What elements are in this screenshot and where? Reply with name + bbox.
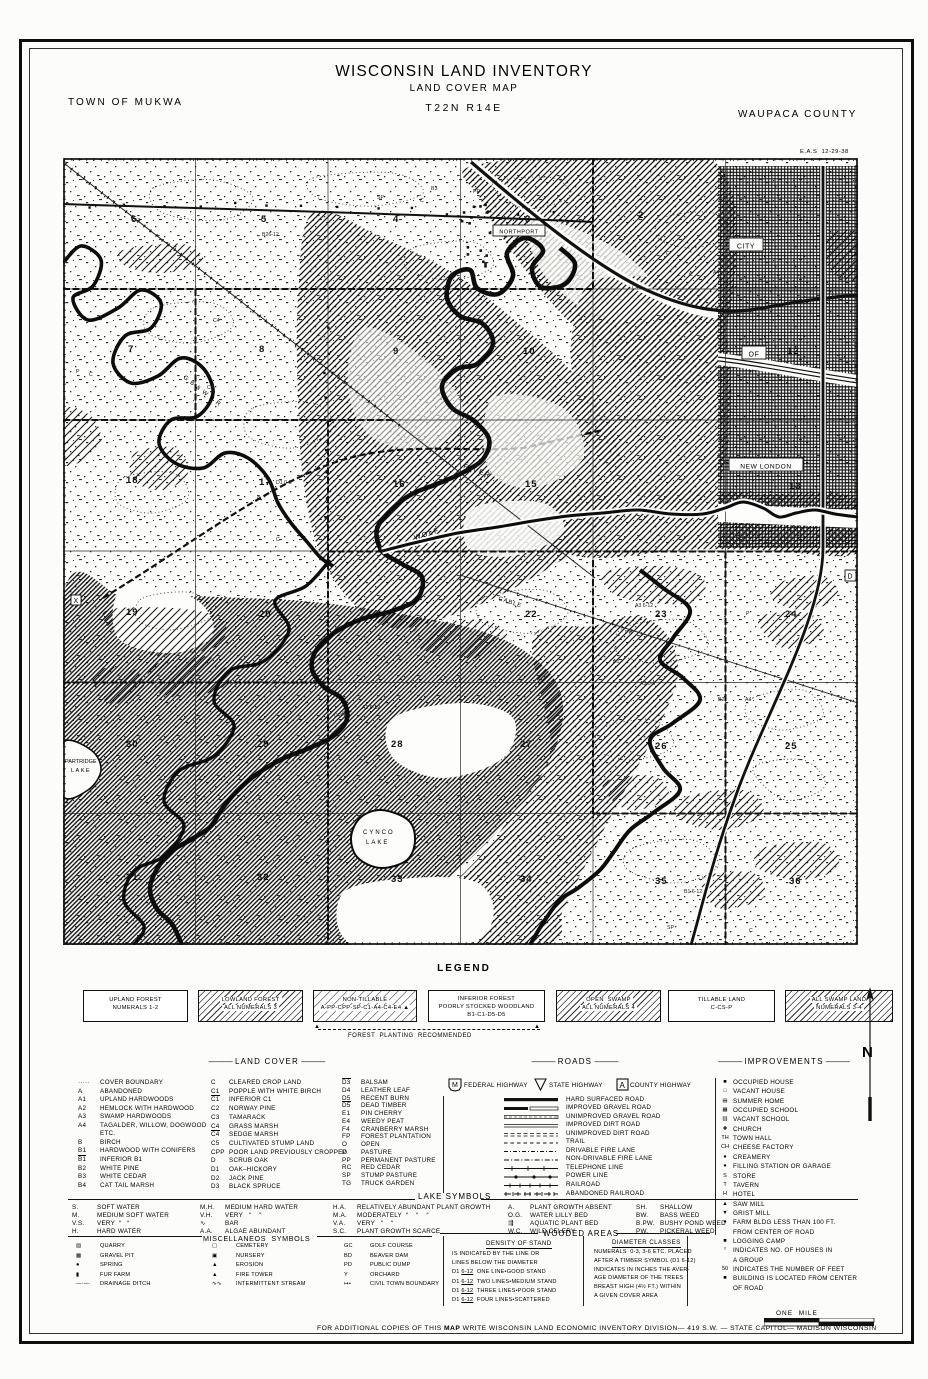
svg-text:27: 27: [520, 739, 533, 750]
svg-text:36: 36: [789, 876, 802, 887]
svg-text:C4: C4: [213, 318, 220, 324]
svg-text:PP: PP: [473, 189, 480, 195]
svg-text:9: 9: [393, 346, 399, 357]
svg-text:3: 3: [525, 214, 531, 225]
svg-text:7: 7: [128, 344, 134, 355]
svg-text:A3 6-12: A3 6-12: [635, 603, 653, 609]
svg-text:17: 17: [259, 477, 272, 488]
svg-text:2: 2: [638, 210, 644, 221]
svg-text:23: 23: [655, 609, 668, 620]
svg-text:OF: OF: [749, 351, 760, 358]
svg-text:D1 0-6: D1 0-6: [276, 480, 292, 486]
svg-text:CITY: CITY: [737, 243, 755, 250]
svg-text:C: C: [749, 928, 753, 934]
svg-text:B26-12: B26-12: [262, 232, 279, 238]
svg-text:15: 15: [525, 479, 538, 490]
svg-text:26: 26: [655, 741, 668, 752]
svg-text:CYNCO: CYNCO: [363, 830, 395, 836]
svg-text:C: C: [89, 372, 93, 378]
svg-text:SP: SP: [377, 195, 384, 201]
svg-text:A: A: [620, 1081, 626, 1090]
svg-text:13: 13: [789, 481, 802, 492]
svg-text:C: C: [666, 251, 670, 257]
svg-text:18: 18: [126, 475, 139, 486]
svg-text:19: 19: [126, 607, 139, 618]
svg-text:LAKE: LAKE: [71, 768, 91, 774]
svg-text:20: 20: [259, 609, 272, 620]
svg-text:B1 6-12: B1 6-12: [684, 889, 702, 895]
svg-text:NEW LONDON: NEW LONDON: [740, 463, 791, 470]
svg-text:24: 24: [785, 609, 798, 620]
svg-text:C4: C4: [207, 385, 214, 391]
svg-text:PARTRIDGE: PARTRIDGE: [65, 759, 97, 765]
svg-text:10: 10: [523, 346, 536, 357]
svg-text:4: 4: [393, 214, 399, 225]
svg-text:28: 28: [391, 739, 404, 750]
svg-text:PP: PP: [625, 630, 632, 636]
svg-text:31: 31: [126, 872, 139, 883]
svg-text:C: C: [689, 272, 693, 278]
svg-text:12: 12: [787, 346, 800, 357]
svg-text:LAKE: LAKE: [366, 840, 389, 846]
svg-text:P: P: [76, 369, 80, 375]
svg-text:C 3-6: C 3-6: [334, 713, 347, 719]
svg-text:16: 16: [393, 479, 406, 490]
svg-text:C: C: [276, 537, 280, 543]
svg-text:34: 34: [520, 874, 533, 885]
svg-text:A4: A4: [713, 270, 719, 276]
svg-text:B2: B2: [718, 697, 724, 703]
svg-text:P: P: [746, 611, 750, 617]
svg-text:A1 6-12: A1 6-12: [362, 705, 380, 711]
svg-text:22: 22: [525, 609, 538, 620]
svg-text:NORTHPORT: NORTHPORT: [499, 229, 538, 235]
svg-text:C: C: [420, 198, 424, 204]
svg-text:D: D: [848, 574, 853, 581]
svg-text:5: 5: [261, 214, 267, 225]
svg-text:35: 35: [655, 876, 668, 887]
svg-text:25: 25: [785, 741, 798, 752]
svg-text:SP: SP: [667, 925, 674, 931]
svg-text:C4: C4: [632, 285, 639, 291]
svg-text:N: N: [862, 1044, 873, 1061]
svg-text:32: 32: [257, 872, 270, 883]
svg-text:29: 29: [257, 739, 270, 750]
svg-text:C: C: [257, 496, 261, 502]
svg-text:A3 0-6: A3 0-6: [640, 681, 655, 687]
svg-text:A1: A1: [613, 659, 619, 665]
svg-text:X: X: [74, 598, 79, 605]
svg-text:B3: B3: [431, 186, 437, 192]
svg-text:33: 33: [391, 874, 404, 885]
svg-text:M: M: [452, 1082, 458, 1089]
svg-text:A3: A3: [134, 218, 140, 224]
svg-text:30: 30: [126, 739, 139, 750]
svg-text:8: 8: [259, 344, 265, 355]
